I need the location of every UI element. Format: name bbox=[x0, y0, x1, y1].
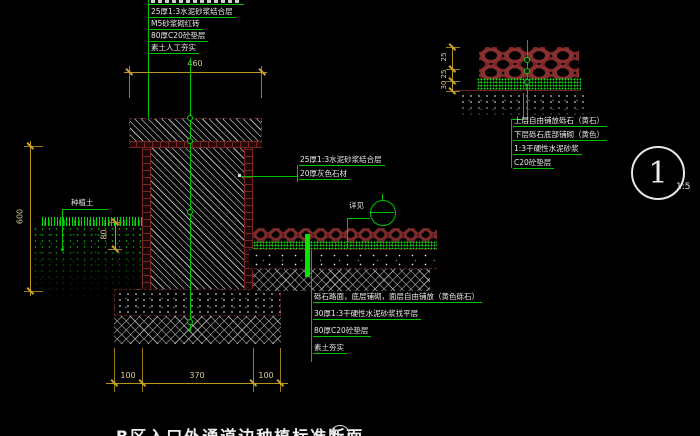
gravel-green-band bbox=[253, 241, 437, 249]
grass-hatch bbox=[42, 216, 142, 226]
dim-text-wall-top-width: 460 bbox=[173, 59, 217, 68]
wall-brick-left bbox=[142, 148, 151, 289]
leader-grip bbox=[238, 174, 241, 177]
extension-line bbox=[253, 348, 254, 392]
dim-text-wall-height: 600 bbox=[16, 199, 25, 235]
label-underline bbox=[62, 209, 108, 210]
grip-node bbox=[187, 138, 193, 144]
leader-spine-top-left bbox=[148, 0, 149, 118]
dimension-line-bottom bbox=[106, 383, 288, 384]
cobble-surface-hatch bbox=[253, 228, 437, 242]
grip-node bbox=[187, 319, 193, 325]
annotation-line: 25厚1:3水泥砂浆结合层 bbox=[299, 156, 385, 166]
detail-base-line bbox=[455, 90, 581, 91]
dimension-line-600 bbox=[30, 141, 31, 296]
section-marker-bar bbox=[305, 234, 310, 277]
annotation-line: 25厚1:3水泥砂浆结合层 bbox=[150, 8, 236, 18]
extension-line bbox=[142, 348, 143, 392]
detail-cobble-hatch bbox=[479, 47, 579, 79]
leader-end-dot bbox=[61, 248, 64, 251]
footing-concrete-hatch bbox=[114, 289, 281, 316]
annotation-line: 下层砾石底部铺砌（黄色） bbox=[513, 131, 607, 141]
grip-node bbox=[187, 209, 193, 215]
extension-line bbox=[280, 348, 281, 392]
callout-tick bbox=[382, 194, 383, 200]
leader-line bbox=[347, 218, 370, 219]
dim-text-layer: 30 bbox=[440, 75, 448, 95]
dim-text-segment: 100 bbox=[113, 371, 143, 380]
dimension-line-460 bbox=[124, 72, 267, 73]
leader-spine-bottom bbox=[311, 250, 312, 362]
grip-node bbox=[524, 79, 530, 85]
cad-drawing-canvas: 25厚1:3水泥砂浆结合层 M5砂浆砌红砖 80厚C20砼垫层 素土人工夯实 4… bbox=[0, 0, 700, 436]
dimension-line-80 bbox=[115, 222, 116, 249]
wall-centerline bbox=[190, 58, 191, 332]
leader-line bbox=[347, 218, 348, 249]
annotation-line: C20砼垫层 bbox=[513, 159, 554, 169]
annotation-block-detail: 上层自由铺放砾石（黄石） 下层砾石底部铺砌（黄色） 1:3干硬性水泥砂浆 C20… bbox=[513, 117, 607, 169]
clipped-text-underline bbox=[148, 4, 244, 5]
annotation-line: 30厚1:3干硬性水泥砂浆找平层 bbox=[313, 310, 421, 320]
leader-line bbox=[240, 176, 298, 177]
dim-text-segment: 100 bbox=[251, 371, 281, 380]
annotation-block-pavement: 25厚1:3水泥砂浆结合层 20厚灰色石材 bbox=[299, 156, 385, 180]
extension-line bbox=[114, 348, 115, 392]
annotation-block-top-left: 25厚1:3水泥砂浆结合层 M5砂浆砌红砖 80厚C20砼垫层 素土人工夯实 bbox=[150, 8, 236, 54]
wall-cap-hatch bbox=[129, 118, 262, 142]
detail-callout-icon bbox=[370, 200, 396, 226]
annotation-line: 素土夯实 bbox=[313, 344, 347, 354]
dim-text-segment: 370 bbox=[177, 371, 217, 380]
wall-core-hatch bbox=[151, 148, 244, 289]
footing-subbase-hatch bbox=[114, 316, 281, 344]
annotation-line: 80厚C20砼垫层 bbox=[150, 32, 208, 42]
annotation-block-bottom: 砾石路面，底层铺砌，面层自由铺放（黄色砾石） 30厚1:3干硬性水泥砂浆找平层 … bbox=[313, 293, 482, 354]
mortar-base-hatch bbox=[249, 249, 437, 269]
path-subbase-hatch bbox=[253, 269, 430, 291]
dim-text-soil-depth: 80 bbox=[100, 224, 109, 246]
annotation-line: 素土人工夯实 bbox=[150, 44, 199, 54]
annotation-line: 1:3干硬性水泥砂浆 bbox=[513, 145, 582, 155]
clipped-text-remnant bbox=[151, 0, 241, 3]
grip-node bbox=[187, 115, 193, 121]
annotation-line: 上层自由铺放砾石（黄石） bbox=[513, 117, 607, 127]
detail-number: 1 bbox=[648, 156, 667, 191]
annotation-line: 20厚灰色石材 bbox=[299, 170, 350, 180]
see-detail-label: 详见 bbox=[349, 200, 364, 211]
planting-soil-label: 种植土 bbox=[71, 197, 94, 208]
annotation-line: M5砂浆砌红砖 bbox=[150, 20, 203, 30]
scale-label: 1:5 bbox=[676, 182, 690, 192]
grip-node bbox=[524, 68, 530, 74]
grip-node bbox=[524, 57, 530, 63]
drawing-title: B区入口外通道边种植标准断面 bbox=[116, 423, 364, 436]
leader-line bbox=[62, 209, 63, 248]
leader-spine-detail bbox=[511, 119, 512, 168]
callout-divider bbox=[371, 212, 394, 213]
leader-spine bbox=[297, 165, 298, 182]
wall-cap-brick-course bbox=[129, 141, 262, 148]
annotation-line: 砾石路面，底层铺砌，面层自由铺放（黄色砾石） bbox=[313, 293, 482, 303]
annotation-line: 80厚C20砼垫层 bbox=[313, 327, 371, 337]
